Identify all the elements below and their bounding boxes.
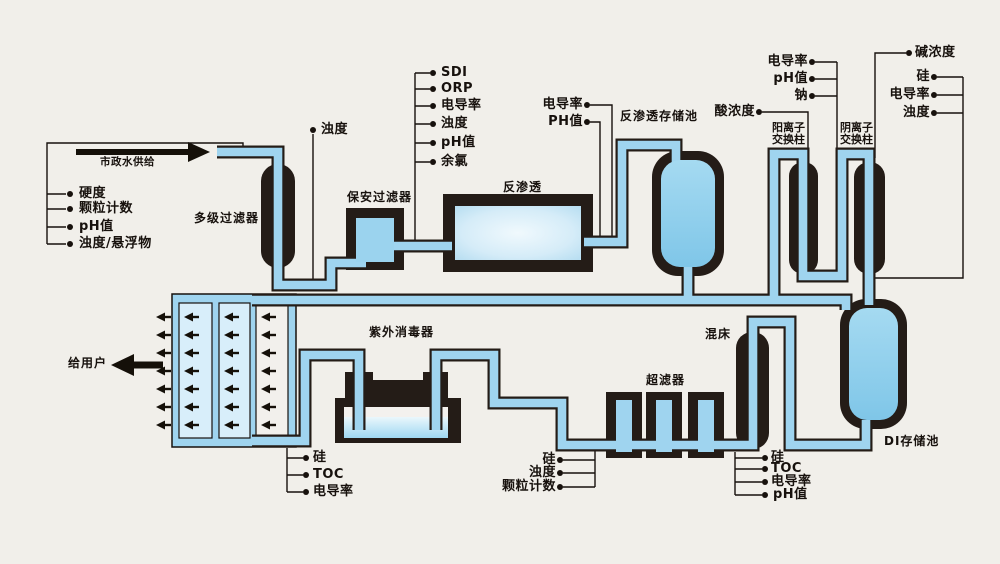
cation-out-monitor-sodium: 钠 [794,89,808,104]
ro-label: 反渗透 [503,181,542,195]
water-treatment-diagram: 市政水供给 硬度 颗粒计数 pH值 浊度/悬浮物 浊度 多级过滤器 保安过滤器 … [0,0,1000,564]
anion-column-label: 阴离子 交换柱 [840,122,873,145]
acid-dosing-label: 酸浓度 [714,105,755,120]
cation-column-label-line1: 阳离子 [772,122,805,134]
loop-monitor-turbidity: 浊度 [903,106,930,121]
loop-monitor-silica: 硅 [916,70,930,85]
uv-out-monitor-conductivity: 电导率 [313,485,354,500]
anion-column-label-line2: 交换柱 [840,134,873,146]
uv-steriliser-label: 紫外消毒器 [369,326,434,340]
mb-out-monitor-ph: pH值 [773,488,808,503]
cation-column-label: 阳离子 交换柱 [772,122,805,145]
alkali-dosing-label: 碱浓度 [915,46,956,61]
feed-monitor-turbidity-ss: 浊度/悬浮物 [79,237,152,252]
process-diagram-graphics [0,0,1000,564]
turbidity-tap-label: 浊度 [321,123,348,138]
ro-storage-tank-label: 反渗透存储池 [620,110,698,124]
ro-feed-monitor-orp: ORP [441,82,473,97]
multistage-filter-label: 多级过滤器 [194,212,259,226]
mixed-bed-label: 混床 [705,328,731,342]
cation-out-monitor-ph: pH值 [773,72,808,87]
anion-column-label-line1: 阴离子 [840,122,873,134]
to-users-flow-arrow-icon [111,354,163,376]
to-users-label: 给用户 [68,357,107,371]
feed-monitor-hardness: 硬度 [79,187,106,202]
ro-out-monitor-conductivity: 电导率 [542,98,583,113]
uf-monitor-particle-count: 颗粒计数 [502,480,556,495]
ro-out-monitor-ph: PH值 [548,115,583,130]
uv-out-monitor-toc: TOC [313,468,344,483]
pipes [217,145,869,445]
cation-out-monitor-conductivity: 电导率 [767,55,808,70]
uf-label: 超滤器 [646,374,685,388]
ro-feed-monitor-sdi: SDI [441,66,468,81]
ro-feed-monitor-conductivity: 电导率 [441,99,482,114]
ro-feed-monitor-ph: pH值 [441,136,476,151]
supply-label: 市政水供给 [100,156,155,168]
feed-monitor-particle-count: 颗粒计数 [79,202,133,217]
ro-feed-monitor-chlorine: 余氯 [441,155,468,170]
di-storage-tank-label: DI存储池 [884,435,939,449]
security-filter-label: 保安过滤器 [347,191,412,205]
uv-out-monitor-silica: 硅 [313,451,327,466]
loop-monitor-conductivity: 电导率 [889,88,930,103]
ro-feed-monitor-turbidity: 浊度 [441,117,468,132]
feed-monitor-ph: pH值 [79,220,114,235]
cation-column-label-line2: 交换柱 [772,134,805,146]
